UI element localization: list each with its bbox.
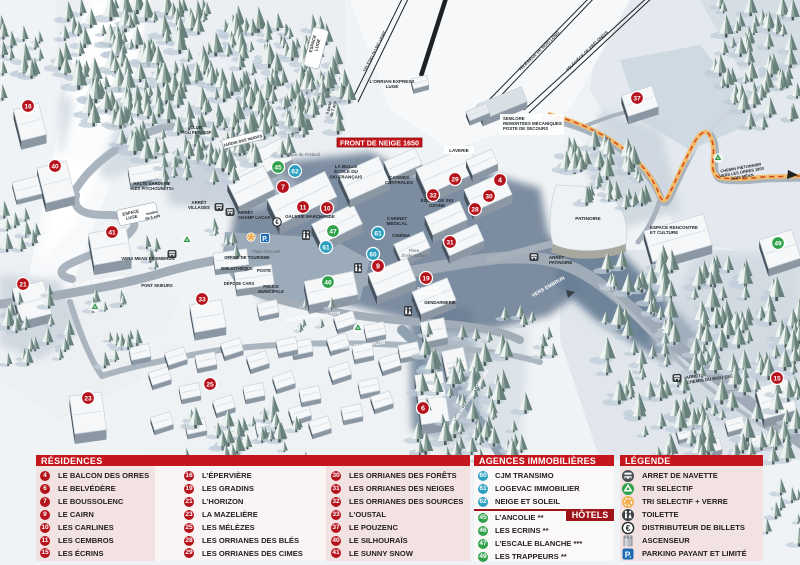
- svg-text:37: 37: [633, 95, 641, 102]
- svg-text:47: 47: [329, 228, 337, 235]
- svg-text:61: 61: [322, 244, 330, 251]
- svg-text:7: 7: [281, 182, 285, 191]
- svg-text:Place du Festival: Place du Festival: [286, 152, 320, 157]
- svg-text:10: 10: [323, 205, 331, 212]
- svg-text:CABINETMÉDICAL: CABINETMÉDICAL: [387, 216, 408, 226]
- svg-text:30: 30: [485, 193, 493, 200]
- svg-text:62: 62: [291, 168, 299, 175]
- svg-text:41: 41: [108, 229, 116, 236]
- svg-text:6: 6: [421, 403, 425, 412]
- svg-text:40: 40: [51, 163, 59, 170]
- svg-text:GENDARMERIE: GENDARMERIE: [424, 300, 456, 305]
- svg-text:€: €: [626, 523, 631, 533]
- svg-text:FRONT DE NEIGE 1650: FRONT DE NEIGE 1650: [340, 138, 419, 147]
- svg-text:46: 46: [324, 279, 332, 286]
- svg-text:61: 61: [374, 230, 382, 237]
- svg-text:LAVERIE: LAVERIE: [449, 148, 469, 153]
- svg-text:BIBLIOTHÈQUE: BIBLIOTHÈQUE: [221, 266, 253, 271]
- svg-text:33: 33: [198, 296, 206, 303]
- svg-text:11: 11: [300, 204, 307, 211]
- svg-text:DÉPOSE CARS: DÉPOSE CARS: [224, 281, 255, 286]
- svg-text:OFFICE DE TOURISME: OFFICE DE TOURISME: [224, 255, 270, 260]
- svg-text:SALLE DESÉMINAIRES: SALLE DESÉMINAIRES: [414, 286, 441, 296]
- svg-text:60: 60: [369, 251, 377, 258]
- svg-text:45: 45: [274, 164, 282, 171]
- svg-text:49: 49: [774, 240, 782, 247]
- svg-text:32: 32: [429, 192, 437, 199]
- svg-text:15: 15: [773, 375, 781, 382]
- svg-text:25: 25: [206, 381, 214, 388]
- svg-text:VERS MEAN ET EMBRUN: VERS MEAN ET EMBRUN: [121, 256, 174, 261]
- svg-text:P.: P.: [262, 236, 268, 243]
- svg-text:CINÉMA: CINÉMA: [392, 231, 411, 238]
- svg-text:HALTE GARDERIE«LES PITCHOUNETS: HALTE GARDERIE«LES PITCHOUNETS»: [130, 181, 175, 191]
- svg-text:PATINOIRE: PATINOIRE: [575, 216, 601, 222]
- svg-text:POSTE: POSTE: [257, 268, 271, 273]
- svg-text:P.: P.: [625, 549, 632, 559]
- svg-text:9: 9: [376, 261, 380, 270]
- svg-text:28: 28: [471, 206, 479, 213]
- svg-text:23: 23: [84, 395, 92, 402]
- svg-text:29: 29: [451, 176, 459, 183]
- svg-text:CAISSESCENTRALES: CAISSESCENTRALES: [385, 175, 413, 185]
- svg-text:16: 16: [24, 103, 32, 110]
- svg-text:4: 4: [498, 175, 502, 184]
- svg-text:Place d’accueil: Place d’accueil: [252, 249, 281, 254]
- svg-text:21: 21: [19, 281, 27, 288]
- svg-text:PONT SKIEURS: PONT SKIEURS: [141, 283, 173, 288]
- svg-text:19: 19: [422, 275, 430, 282]
- svg-text:31: 31: [446, 239, 454, 246]
